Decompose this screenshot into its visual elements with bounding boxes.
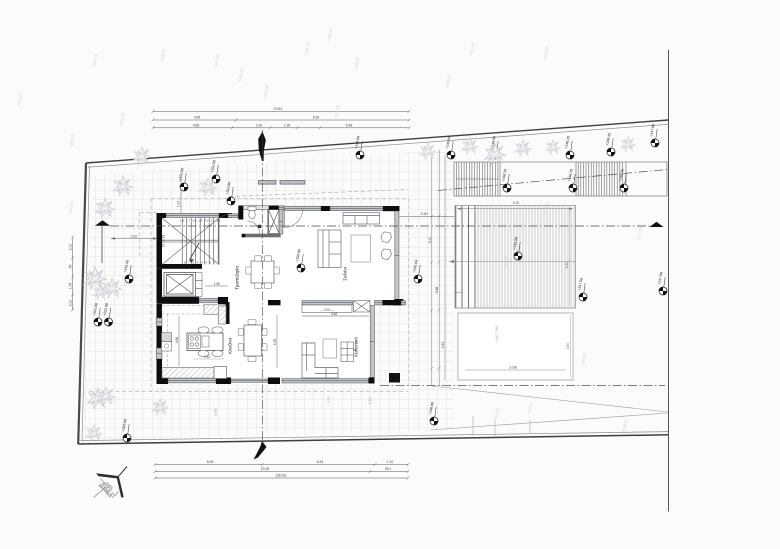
svg-text:6.35: 6.35 — [273, 339, 277, 346]
svg-text:+146.5: +146.5 — [494, 408, 500, 420]
svg-text:2.60: 2.60 — [441, 342, 445, 349]
svg-text:3.30: 3.30 — [421, 212, 428, 216]
svg-text:6.88: 6.88 — [435, 287, 439, 294]
svg-text:+151.00: +151.00 — [304, 42, 310, 56]
svg-text:+152.00: +152.00 — [160, 49, 166, 63]
svg-text:+148.20: +148.20 — [564, 136, 571, 150]
svg-text:+150.80: +150.80 — [354, 57, 360, 71]
svg-text:35.1: 35.1 — [385, 467, 392, 471]
svg-text:+145.00: +145.00 — [503, 256, 509, 270]
svg-text:+150.45: +150.45 — [445, 75, 451, 89]
svg-text:2.40: 2.40 — [204, 355, 211, 359]
svg-text:3.50: 3.50 — [566, 343, 570, 350]
svg-text:+152.25: +152.25 — [214, 54, 220, 68]
svg-text:+147.00: +147.00 — [657, 272, 664, 286]
svg-text:+152.00: +152.00 — [238, 68, 244, 82]
svg-text:1.05: 1.05 — [327, 397, 331, 404]
svg-text:+148.45: +148.45 — [605, 133, 612, 147]
svg-text:4.85: 4.85 — [194, 116, 201, 120]
svg-text:+151.40: +151.40 — [327, 28, 333, 42]
svg-text:+148.45: +148.45 — [618, 169, 625, 183]
svg-text:+151.08: +151.08 — [263, 85, 269, 99]
svg-text:16 17 18 19 20 21 22: 16 17 18 19 20 21 22 — [180, 219, 221, 223]
svg-text:1.80: 1.80 — [214, 282, 221, 286]
svg-text:2.10: 2.10 — [68, 244, 72, 251]
svg-text:+147.780: +147.780 — [494, 325, 499, 343]
svg-text:8 7 6 5 4 3 2 1: 8 7 6 5 4 3 2 1 — [184, 261, 216, 265]
svg-text:Σαλόνι: Σαλόνι — [342, 267, 348, 281]
svg-text:3.88: 3.88 — [331, 312, 338, 316]
svg-text:3.88: 3.88 — [509, 365, 518, 370]
svg-text:+149.00: +149.00 — [445, 136, 452, 150]
svg-text:15 14 13: 15 14 13 — [162, 235, 166, 248]
svg-text:5.06: 5.06 — [207, 460, 214, 464]
svg-text:+148.20: +148.20 — [501, 169, 508, 183]
svg-text:+149.80: +149.80 — [543, 46, 549, 60]
svg-text:4.88: 4.88 — [175, 337, 179, 344]
svg-text:6.95: 6.95 — [214, 409, 218, 416]
svg-text:2.10: 2.10 — [68, 300, 72, 307]
svg-text:5.10: 5.10 — [428, 237, 432, 244]
svg-text:+150.74: +150.74 — [92, 54, 98, 68]
svg-text:2.30: 2.30 — [256, 124, 263, 128]
svg-text:+146.2: +146.2 — [527, 403, 533, 415]
svg-text:9.30: 9.30 — [313, 116, 320, 120]
svg-text:3.10: 3.10 — [131, 234, 138, 238]
svg-text:5.48: 5.48 — [346, 124, 353, 128]
svg-text:6.30: 6.30 — [565, 262, 569, 269]
svg-text:+148.20: +148.20 — [567, 169, 574, 183]
svg-text:(28.61): (28.61) — [276, 474, 287, 478]
svg-text:+146.47: +146.47 — [622, 419, 629, 433]
svg-text:8.43: 8.43 — [317, 460, 324, 464]
svg-text:1.00: 1.00 — [177, 201, 181, 208]
svg-text:+147.56: +147.56 — [577, 278, 584, 292]
svg-text:1.10: 1.10 — [387, 460, 394, 464]
svg-text:187.92: 187.92 — [581, 353, 587, 365]
svg-text:+145.00: +145.00 — [544, 201, 550, 215]
svg-text:19.81: 19.81 — [274, 107, 283, 111]
svg-text:+151.40: +151.40 — [469, 43, 475, 57]
svg-text:5.15: 5.15 — [513, 201, 520, 205]
svg-text:+149.74: +149.74 — [17, 92, 23, 106]
svg-text:+152.45: +152.45 — [119, 113, 125, 127]
svg-text:2.49: 2.49 — [368, 398, 372, 405]
svg-text:1.75: 1.75 — [68, 283, 72, 290]
svg-text:+152.70: +152.70 — [69, 134, 75, 148]
svg-text:4.85: 4.85 — [193, 124, 200, 128]
svg-text:+152.00: +152.00 — [68, 201, 74, 215]
svg-text:147.729: 147.729 — [637, 226, 643, 240]
svg-text:.75: .75 — [68, 265, 72, 270]
svg-text:1.35: 1.35 — [284, 124, 291, 128]
svg-text:+151.08: +151.08 — [334, 105, 340, 119]
svg-text:20.25: 20.25 — [261, 467, 270, 471]
svg-text:+145.00: +145.00 — [512, 237, 519, 251]
